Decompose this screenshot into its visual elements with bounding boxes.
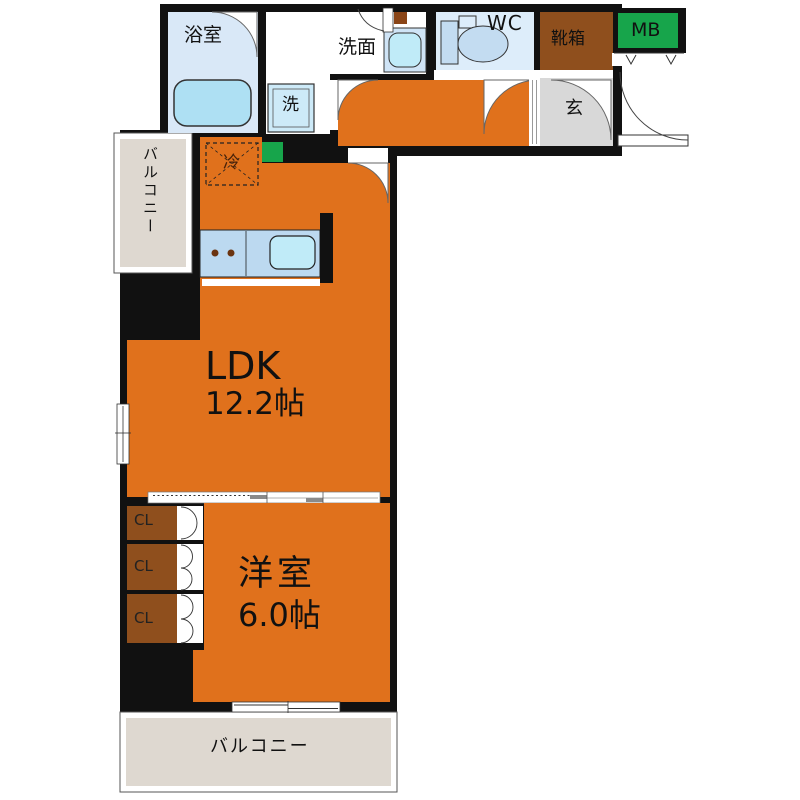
balcony-bottom-label: バルコニー [210, 738, 310, 756]
wall-counter-side [320, 213, 333, 283]
closet-label: CL [134, 611, 153, 626]
bathroom-label: 浴室 [184, 26, 222, 45]
western-name-label: 洋室 [238, 557, 316, 592]
closet-label: CL [134, 559, 153, 574]
western-south-window [232, 701, 340, 713]
wc-label: WC [487, 13, 523, 33]
closet-label: CL [134, 513, 153, 528]
western-size-label: 6.0帖 [238, 599, 321, 631]
sliding-partition [148, 492, 380, 503]
counter-edge [202, 279, 320, 286]
shoebox-label: 靴箱 [551, 31, 585, 48]
entrance-label: 玄 [565, 100, 583, 118]
washroom-label: 洗面 [338, 38, 376, 57]
refrigerator-label: 冷 [223, 155, 240, 172]
ldk-size-label: 12.2帖 [205, 389, 305, 420]
ldk-name-label: LDK [205, 347, 280, 385]
floorplan-drawing [0, 0, 800, 800]
ldk-floor [200, 283, 390, 340]
washroom-top-door-frame [394, 12, 407, 24]
meter-box-vent [612, 53, 686, 66]
bathtub [174, 80, 251, 126]
meter-box-label: MB [631, 21, 660, 40]
laundry-label: 洗 [282, 97, 299, 114]
toilet-tank [441, 21, 458, 64]
vanity-basin [389, 33, 421, 67]
stove-burner-icon [212, 250, 219, 257]
entrance-step [529, 78, 540, 146]
pipe-space-green [262, 142, 283, 162]
western-floor [193, 650, 390, 702]
hallway-entrance [323, 70, 688, 146]
floorplan-page: 浴室 洗面 洗 WC 靴箱 MB 玄 冷 LDK 12.2帖 CL CL CL … [0, 0, 800, 800]
kitchen-sink [270, 236, 315, 269]
ldk-doorway [348, 148, 388, 163]
ldk-west-window [115, 404, 131, 464]
toilet-cistern [459, 16, 476, 28]
washroom-doorway [323, 80, 338, 130]
front-door-swing-arc [620, 72, 688, 140]
sliding-panel-tab [306, 498, 323, 502]
stove-burner-icon [228, 250, 235, 257]
sliding-panel-tab [250, 495, 267, 499]
window-frame [232, 702, 340, 712]
front-door-leaf [618, 135, 688, 146]
washroom-top-door-leaf [383, 8, 393, 32]
balcony-left-label: バルコニー [142, 146, 157, 264]
